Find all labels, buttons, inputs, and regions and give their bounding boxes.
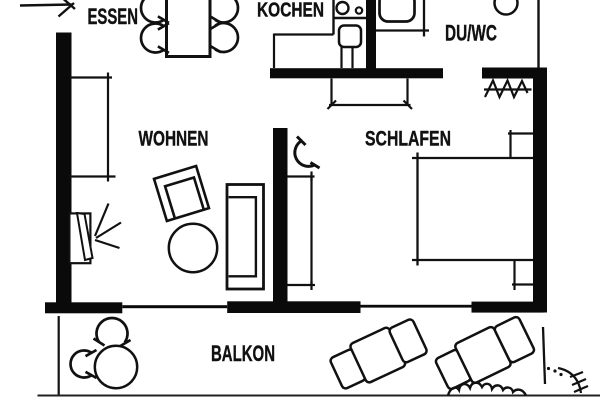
svg-text:ESSEN: ESSEN [88,4,139,29]
svg-text:WOHNEN: WOHNEN [139,127,209,151]
svg-text:DU/WC: DU/WC [445,21,497,46]
svg-text:KOCHEN: KOCHEN [257,0,324,22]
svg-text:SCHLAFEN: SCHLAFEN [365,127,451,151]
svg-text:BALKON: BALKON [211,341,275,366]
